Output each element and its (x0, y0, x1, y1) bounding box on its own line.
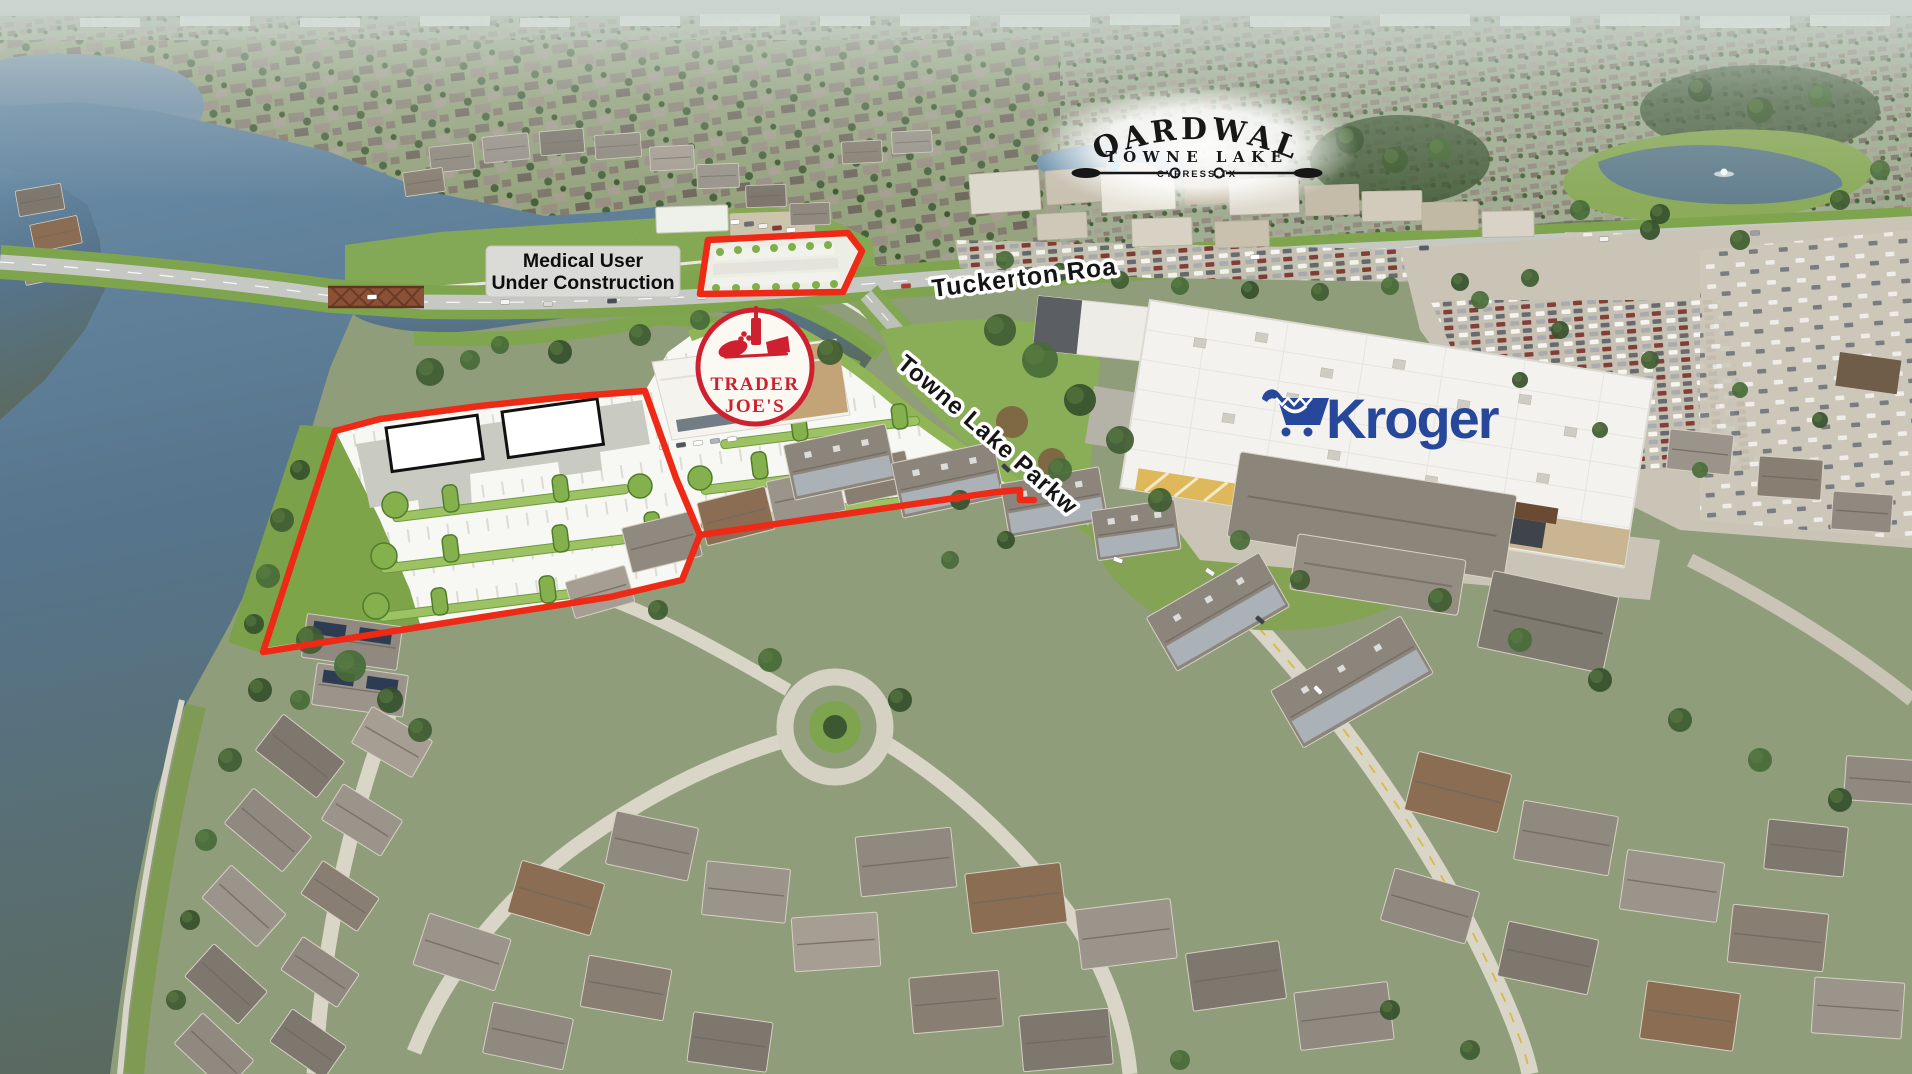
kroger-logo-text: Kroger (1326, 387, 1499, 450)
tree (690, 310, 710, 330)
haze-overlay (0, 0, 1912, 200)
house (1831, 491, 1894, 533)
tree (1812, 412, 1828, 428)
tree (377, 687, 403, 713)
house (687, 1012, 773, 1073)
tree (548, 340, 572, 364)
tree (1311, 283, 1329, 301)
house (1019, 1008, 1114, 1072)
trader-joes-logo-line1: TRADER (710, 374, 799, 395)
tree (1748, 748, 1772, 772)
tree (1230, 530, 1250, 550)
medical-user-label-line1: Medical User (523, 250, 644, 272)
car (901, 283, 911, 288)
tree (416, 358, 444, 386)
house (1619, 849, 1724, 922)
car (367, 295, 377, 300)
tree (1106, 426, 1134, 454)
tree (1428, 588, 1452, 612)
tree (256, 564, 280, 588)
tree (1692, 462, 1708, 478)
tree (1451, 273, 1469, 291)
tree (1668, 708, 1692, 732)
tree (1588, 668, 1612, 692)
house (701, 861, 790, 923)
tree (195, 829, 217, 851)
tree (984, 314, 1016, 346)
tree (817, 339, 843, 365)
tree (270, 508, 294, 532)
tree (1290, 570, 1310, 590)
medical-user-label-line2: Under Construction (491, 272, 674, 294)
boardwalk-building (1422, 202, 1478, 231)
car (1419, 245, 1429, 250)
house (1185, 941, 1286, 1012)
tree (290, 690, 310, 710)
tree (997, 531, 1015, 549)
tree (1512, 372, 1528, 388)
tree (218, 748, 242, 772)
car (1750, 230, 1760, 235)
aerial-scene: Kroger (0, 0, 1912, 1074)
car (1250, 254, 1260, 259)
house (1294, 981, 1394, 1050)
house (1844, 756, 1912, 805)
tree (1170, 1050, 1190, 1070)
tree (1381, 277, 1399, 295)
boardwalk-logo-location: CYPRESS,TX (1157, 169, 1237, 180)
tree (1508, 628, 1532, 652)
tree (1148, 488, 1172, 512)
tree (1641, 351, 1659, 369)
tree (648, 600, 668, 620)
tree (1471, 291, 1489, 309)
house (1639, 981, 1740, 1052)
house (965, 862, 1068, 933)
tree (941, 551, 959, 569)
tree (166, 990, 186, 1010)
tree (1022, 342, 1058, 378)
tree (1828, 788, 1852, 812)
tree (888, 688, 912, 712)
tree (629, 324, 651, 346)
tree (1650, 204, 1670, 224)
boardwalk-building (1036, 212, 1087, 241)
tree (408, 718, 432, 742)
tree (1380, 1000, 1400, 1020)
trader-joes-logo-line2: JOE'S (725, 396, 785, 417)
tree (244, 614, 264, 634)
tree (1521, 269, 1539, 287)
medical-user-label: Medical User Under Construction (486, 246, 680, 297)
car (1599, 236, 1609, 241)
tree (290, 460, 310, 480)
car (786, 227, 796, 232)
trader-joes-logo: TRADER JOE'S (698, 306, 812, 424)
lakeside-amenity-building (656, 205, 729, 233)
car (543, 302, 553, 307)
house (1075, 898, 1178, 969)
tree (1730, 230, 1750, 250)
house (1764, 819, 1849, 877)
tree (1551, 321, 1569, 339)
tree (180, 910, 200, 930)
tree (1592, 422, 1608, 438)
car (730, 219, 740, 224)
house (790, 202, 831, 225)
house (855, 827, 957, 897)
car (500, 300, 510, 305)
boardwalk-logo-subtitle: TOWNE LAKE (1105, 148, 1288, 166)
tree (334, 650, 366, 682)
car (758, 223, 768, 228)
tree (1241, 281, 1259, 299)
car (772, 225, 782, 230)
tree (248, 678, 272, 702)
house (909, 970, 1004, 1034)
house (1757, 456, 1824, 500)
boardwalk-building (1482, 211, 1534, 238)
boardwalk-building (1215, 220, 1270, 248)
tree (460, 350, 480, 370)
boardwalk-building (1132, 217, 1193, 247)
car (607, 298, 617, 303)
tree (1064, 384, 1096, 416)
house (1727, 904, 1829, 972)
tree (1570, 200, 1590, 220)
aerial-site-photo: Kroger (0, 0, 1912, 1074)
tree (1460, 1040, 1480, 1060)
tree (758, 648, 782, 672)
tree (491, 336, 509, 354)
tree (1171, 277, 1189, 295)
house (791, 912, 881, 972)
tree (1732, 382, 1748, 398)
car (744, 221, 754, 226)
house (1811, 977, 1905, 1039)
